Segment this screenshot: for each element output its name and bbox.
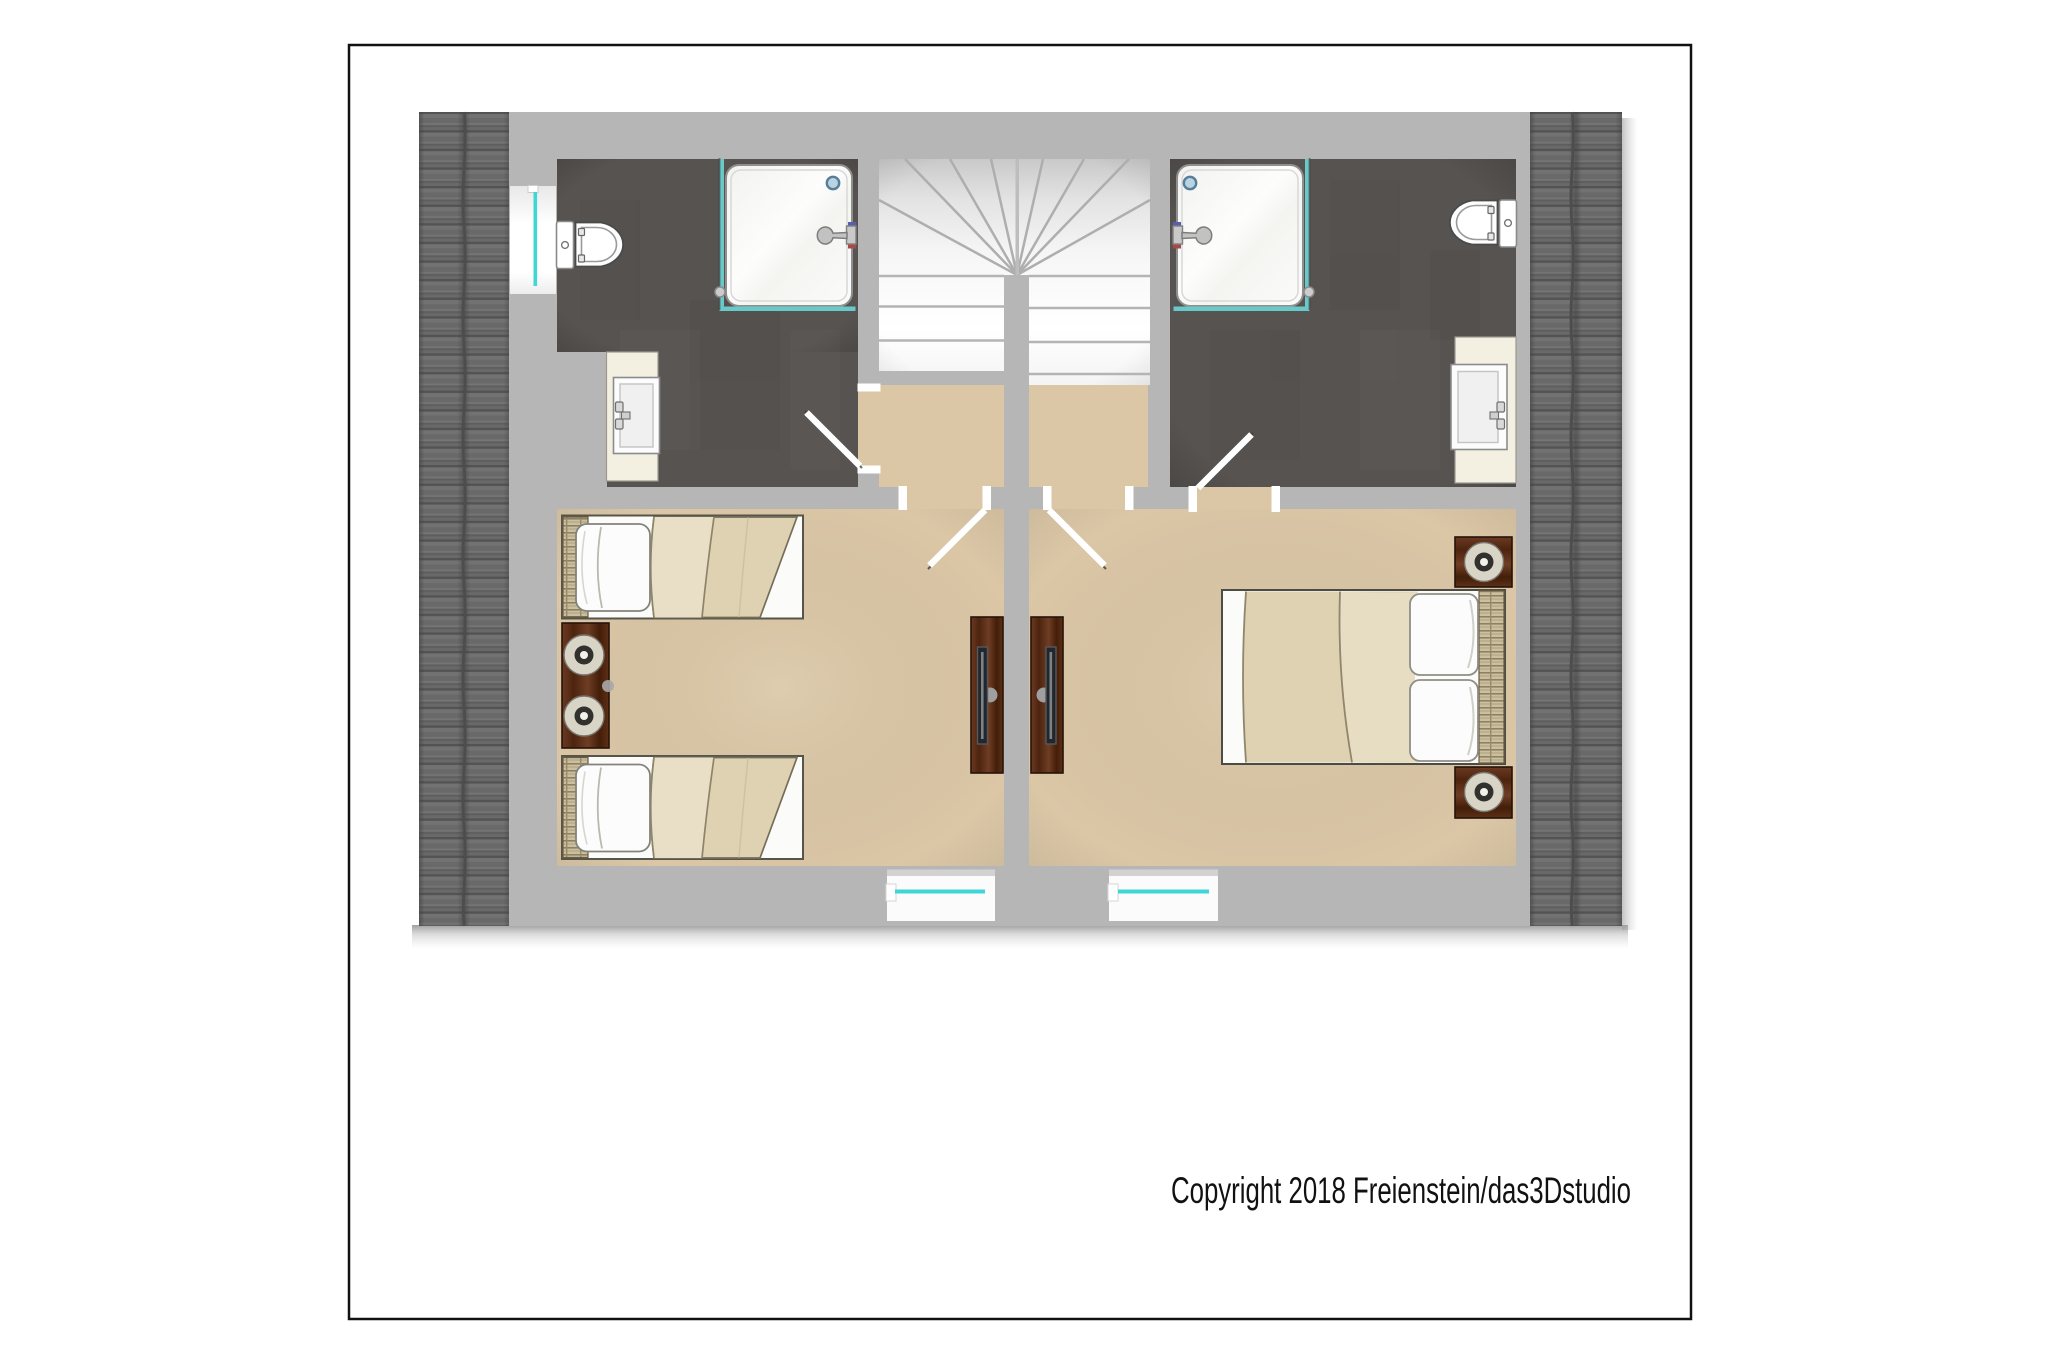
svg-text:Copyright 2018 Freienstein/das: Copyright 2018 Freienstein/das3Dstudio	[1171, 1170, 1631, 1211]
